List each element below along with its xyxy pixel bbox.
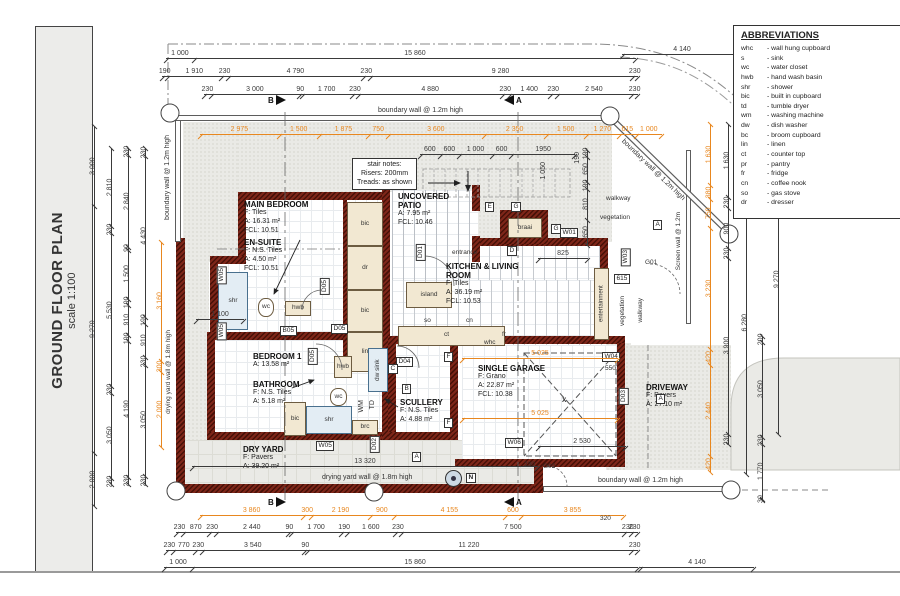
abbreviation-meaning: - sink [767,54,783,64]
dim-segment: 190 [135,317,149,324]
abbreviation-row: pr - pantry [741,160,900,170]
abbreviation-row: dw - dish washer [741,121,900,131]
dim-segment: 5 025 [462,410,618,422]
dim-segment: 3 900 [718,258,732,433]
dim-chain-top-orange: 2 9751 5001 8757503 6002 3501 5001 27061… [200,126,662,138]
abbreviation-meaning: - washing machine [767,111,824,121]
abbreviation-row: dr - dresser [741,198,900,208]
boundary-wall-note-top: boundary wall @ 1.2m high [378,107,463,114]
door-tag-d05: D05 [331,324,348,334]
section-letter: A [516,498,522,507]
page-title: GROUND FLOOR PLAN [49,212,66,389]
dim-1050: 1 050 [540,162,547,180]
coffee-nook-label: cn [466,318,473,325]
dresser: dr [347,246,383,290]
room-label-bedroom1: BEDROOM 1 A: 13.58 m² [253,352,301,370]
room-label-patio: UNCOVERED PATIO A: 7.95 m² FCL: 10.46 [398,192,470,228]
window-tag-w05: W05 [316,441,334,451]
dim-segment: 600 [420,146,440,158]
dim-segment: 4 430 [135,156,149,317]
abbreviation-key: lin [741,140,767,150]
abbreviation-row: bc - broom cupboard [741,131,900,141]
room-label-bathroom: BATHROOM F: N.S. Tiles A: 5.18 m² [253,380,300,407]
dim-segment: 230 [135,476,149,484]
north-letter: N [466,473,476,483]
washing-machine-label: WM [358,400,365,412]
dim-segment: 1 000 [164,559,192,571]
dim-5025-garage-top: 5 025 [462,350,618,362]
dim-chain-right-orange: 1 6303807503 2304202 440420 [700,124,714,472]
dim-chain-top-3: 2303 000901 7002304 8802301 4002302 5402… [204,86,638,98]
dim-segment: 1 700 [302,86,352,98]
dim-segment: 230 [118,477,132,484]
abbreviation-key: bic [741,92,767,102]
dim-segment: 1 500 [546,126,586,138]
dim-segment: 870 [183,524,209,536]
gate-tag-g02: G02 [543,464,555,471]
abbreviation-key: ct [741,150,767,160]
dim-segment: 1 000 [636,126,663,138]
wall-type-tag-c: C [388,364,398,374]
door-tag-d05: D05 [308,348,318,365]
dim-segment: 600 [505,507,521,519]
dim-segment: 1 630 [700,124,714,185]
abbreviation-meaning: - water closet [767,63,807,73]
abbreviation-key: td [741,102,767,112]
dim-segment: 3 000 [84,126,98,206]
abbreviation-row: fr - fridge [741,169,900,179]
dim-segment: 750 [700,199,714,227]
patio-post [472,185,480,211]
walkway-area-left [183,122,238,262]
abbreviation-meaning: - coffee nook [767,179,806,189]
dim-segment: 5 025 [462,350,618,362]
dim-segment: 2 440 [700,365,714,457]
drawing-title: GROUND FLOOR PLAN scale 1:100 [40,150,86,450]
dim-segment: 11 220 [307,542,632,554]
dim-segment: 230 [718,248,732,258]
drying-yard-wall-note: drying yard wall @ 1.8m high [322,474,412,481]
wall-type-tag-a: A [656,394,665,404]
toilet: wc [330,388,347,406]
section-marker-a-bottom: A [504,497,522,507]
abbreviation-meaning: - gas stove [767,189,800,199]
abbreviation-row: cn - coffee nook [741,179,900,189]
boundary-wall-top [174,115,614,121]
dim-segment: 230 [101,478,115,484]
abbreviation-row: lin - linen [741,140,900,150]
abbreviation-meaning: - hand wash basin [767,73,822,83]
door-tag-d04: D04 [396,357,413,367]
dim-segment: 15 860 [194,50,636,62]
boundary-wall-note-left: boundary wall @ 1.2m high [164,135,171,220]
dw-sink-counter: dw sink [368,348,388,392]
abbreviations-panel: ABBREVIATIONS whc - wall hung cupboard s… [733,25,900,219]
dim-190: 190 [574,152,581,164]
boundary-wall-note-diagonal: boundary wall @ 1.2m high [620,138,686,202]
abbreviation-meaning: - linen [767,140,786,150]
drying-yard-wall-west [176,238,185,492]
dim-segment: 1 700 [291,524,342,536]
vegetation-label: vegetation [600,215,630,222]
dim-segment: 3 230 [700,228,714,349]
dim-segment: 1 910 [167,68,221,80]
window-tag-w03: W03 [621,248,631,266]
dim-chain-right-3: 2003 0502301 77030 [752,336,766,500]
scale-label: scale 1:100 [66,212,78,389]
screen-wall-note: Screen wall @ 1.2m [676,212,683,270]
dim-segment: 1 770 [752,444,766,499]
abbreviation-row: s - sink [741,54,900,64]
door-tag-d02: D02 [370,436,380,453]
dim-segment: 810 [577,189,591,220]
hand-wash-basin: hwb [285,301,311,316]
dim-segment: 900 [718,208,732,248]
dim-chain-left-3: 2302 840901 5001909101904 190230 [118,148,132,484]
whc-label: whc [484,340,496,347]
drying-yard-wall-south [176,484,542,493]
entertainment-counter: entertainment [594,268,609,340]
gate-tag-g01: G01 [645,260,657,267]
dim-825: 825 [538,250,588,262]
dim-segment: 230 [631,524,638,536]
dim-segment: 825 [538,250,588,262]
dim-segment: 1 875 [319,126,369,138]
dim-segment: 4 140 [640,559,754,571]
vegetation-label: vegetation [620,296,627,326]
dim-segment: 230 [631,542,638,554]
toilet: wc [258,298,274,317]
dim-1100-ensuite: 1 100 [196,311,244,323]
dim-segment: 1 000 [459,146,492,158]
boundary-wall-bottom [543,486,733,492]
walkway-label: walkway [606,196,631,203]
room-label-kitchen: KITCHEN & LIVING ROOM F: Tiles A: 36.19 … [446,262,530,307]
dim-320: 320 [600,516,611,523]
dim-segment: 3 540 [202,542,304,554]
dim-segment: 900 [370,507,394,519]
dim-chain-patio-right: 190650190810650 [577,150,591,245]
garage-x-label: X [562,398,566,405]
abbreviation-key: shr [741,83,767,93]
abbreviations-list: whc - wall hung cupboard s - sink wc - w… [741,44,900,208]
abbreviation-meaning: - counter top [767,150,805,160]
dim-segment: 230 [632,68,639,80]
dim-chain-left-4: 2304 4301909102303 050230 [135,148,149,484]
door-tag-d03: D03 [619,388,629,405]
dim-segment: 4 155 [394,507,505,519]
dim-segment: 3 050 [101,393,115,478]
window-tag-w05: W05 [217,266,227,284]
dim-segment: 1 600 [347,524,395,536]
dim-segment: 2 840 [118,155,132,247]
bic-cupboard: bic [284,402,306,436]
wall [207,332,215,440]
abbreviation-key: whc [741,44,767,54]
section-arrow-icon [504,497,514,507]
dim-chain-bottom-1: 2308702302 440901 7001901 6002307 500230… [176,524,638,536]
abbreviation-meaning: - shower [767,83,793,93]
dim-2530: 2 530 [538,438,626,450]
dim-segment: 3 050 [135,365,149,476]
dim-segment: 3 000 [211,86,299,98]
dim-segment: 2 810 [101,148,115,226]
dim-segment: 615 [619,126,635,138]
room-label-main-bedroom: MAIN BEDROOM F: Tiles A: 16.31 m² FCL: 1… [244,200,308,235]
dim-segment: 2 530 [538,438,626,450]
dim-segment: 2 440 [216,524,289,536]
dim-segment: 1 100 [196,311,244,323]
dim-chain-bottom-orange: 3 8603002 1909004 1556003 855 [200,507,624,519]
hand-wash-basin: hwb [334,356,352,378]
abbreviation-meaning: - tumble dryer [767,102,809,112]
abbreviation-key: dw [741,121,767,131]
dim-segment: 13 320 [192,458,538,470]
dim-segment: 15 860 [192,559,638,571]
dim-segment: 1950 [511,146,575,158]
door-tag-d05: D05 [320,278,330,295]
dim-230: 230 [524,462,535,469]
wall-type-tag-a: A [653,220,662,230]
abbreviation-row: bic - built in cupboard [741,92,900,102]
dim-4140-bottom: 4 140 [640,559,754,571]
bic-cupboard: bic [347,202,383,246]
abbreviation-key: wm [741,111,767,121]
section-marker-b-bottom: B [268,497,286,507]
dim-segment: 2 000 [151,372,165,447]
abbreviation-key: hwb [741,73,767,83]
abbreviation-row: so - gas stove [741,189,900,199]
dim-segment: 2 975 [200,126,279,138]
wall-type-tag-b: B [402,384,411,394]
dim-segment: 3 860 [200,507,303,519]
abbreviation-key: pr [741,160,767,170]
dim-chain-stairs: 6006001 0006001950 [420,146,575,158]
abbreviation-meaning: - pantry [767,160,790,170]
dim-615: 615 [614,274,630,284]
room-label-driveway: DRIVEWAY F: Pavers A: 27.10 m² [646,383,688,410]
dim-segment: 600 [492,146,512,158]
dim-segment: 2 350 [484,126,546,138]
dim-chain-top-1: 1 00015 860 [166,50,636,62]
section-arrow-icon [276,497,286,507]
dim-segment: 3 160 [151,242,165,361]
abbreviation-meaning: - broom cupboard [767,131,821,141]
dim-segment: 230 [631,86,638,98]
wall-type-tag-g: G [551,224,561,234]
abbreviation-key: s [741,54,767,64]
abbreviation-key: dr [741,198,767,208]
dim-segment: 420 [700,456,714,472]
dim-segment: 230 [135,357,149,365]
abbreviation-key: cn [741,179,767,189]
walkway-label: walkway [638,298,645,323]
room-label-garage: SINGLE GARAGE F: Grano A: 22.87 m² FCL: … [478,364,545,399]
abbreviation-meaning: - dresser [767,198,794,208]
dim-segment: 4 190 [118,341,132,477]
dim-segment: 30 [752,499,766,500]
shower: shr [306,406,352,434]
wall [238,192,388,200]
section-letter: B [268,498,274,507]
dim-chain-left-2: 2 8102305 5302303 050230 [101,148,115,484]
dim-chain-right-1: 1 6302309002303 900230 [718,124,732,444]
sheet-border-bottom [0,571,900,573]
gas-stove-label: so [424,318,431,325]
abbreviation-meaning: - dish washer [767,121,807,131]
dim-segment: 9 270 [84,206,98,453]
dim-chain-bottom-2: 2307702303 5409011 220230 [166,542,638,554]
abbreviation-key: fr [741,169,767,179]
dim-segment: 9 280 [370,68,632,80]
wall-type-tag-d: D [507,246,517,256]
dim-4140-top: 4 140 [622,46,742,58]
dim-segment: 1 000 [166,50,194,62]
dim-segment: 750 [368,126,388,138]
window-tag-w06: W06 [505,438,523,448]
wall-type-tag-g: G [511,202,521,212]
abbreviation-meaning: - wall hung cupboard [767,44,830,54]
dim-chain-left-1: 3 0009 2702 000 [84,126,98,506]
dim-segment: 1 500 [279,126,319,138]
room-label-scullery: SCULLERY F: N.S. Tiles A: 4.88 m² [400,398,443,425]
abbreviation-row: whc - wall hung cupboard [741,44,900,54]
wall [388,336,396,440]
dim-chain-bottom-3: 1 00015 860 [164,559,638,571]
dim-segment: 4 880 [358,86,501,98]
dim-segment: 910 [135,324,149,357]
wall-type-tag-f: F [444,418,453,428]
abbreviation-key: so [741,189,767,199]
wall-type-tag-e: E [485,202,494,212]
boundary-wall-left [175,120,181,242]
abbreviation-meaning: - built in cupboard [767,92,821,102]
window-tag-w05: W05 [217,322,227,340]
dim-segment: 1 630 [718,124,732,197]
dim-5025-garage-bottom: 5 025 [462,410,618,422]
abbreviation-row: shr - shower [741,83,900,93]
bic-cupboard: bic [347,290,383,332]
dim-chain-left-orange: 3 1603002 000 [151,242,165,447]
dim-segment: 600 [440,146,460,158]
dim-segment: 2 540 [557,86,632,98]
wall [388,432,458,440]
abbreviations-title: ABBREVIATIONS [741,30,900,41]
dim-segment: 1 500 [118,250,132,299]
counter-top-label: ct [444,332,449,339]
fridge-label: fr [502,332,506,339]
abbreviation-row: wm - washing machine [741,111,900,121]
dim-segment: 2 000 [84,453,98,506]
screen-wall [686,150,691,324]
dim-13320-dry-yard: 13 320 [192,458,538,470]
dim-chain-top-2: 1901 9102304 7902309 280230 [162,68,638,80]
room-label-en-suite: EN-SUITE F: N.S. Tiles A: 4.50 m² FCL: 1… [244,238,282,273]
dim-segment: 650 [577,220,591,245]
dim-segment: 910 [118,305,132,334]
floor-plan-sheet: GROUND FLOOR PLAN scale 1:100 [0,0,900,596]
dim-segment: 230 [718,434,732,444]
abbreviation-key: bc [741,131,767,141]
dim-550: 550 [605,366,616,373]
dim-segment: 2 190 [311,507,370,519]
dim-segment: 1 400 [509,86,550,98]
dim-segment: 4 790 [228,68,363,80]
broom-cupboard: brc [352,420,378,435]
dim-segment: 7 500 [401,524,624,536]
stair-notes-box: stair notes: Risers: 200mm Treads: as sh… [352,158,417,190]
dim-segment: 3 600 [388,126,483,138]
dim-segment: 4 140 [622,46,742,58]
boundary-wall-note-bottom: boundary wall @ 1.2m high [598,477,683,484]
door-tag-d01: D01 [416,244,426,261]
abbreviation-key: wc [741,63,767,73]
window-tag-w01: W01 [560,228,578,238]
wall-type-tag-f: F [444,352,453,362]
dim-segment: 1 270 [586,126,620,138]
abbreviation-row: hwb - hand wash basin [741,73,900,83]
braai: braai [508,218,542,238]
tumble-dryer-label: TD [369,400,376,409]
abbreviation-row: wc - water closet [741,63,900,73]
entrance-label: entrance [452,250,477,257]
drying-yard-wall-note-left: drying yard wall @ 1.8m high [166,330,173,414]
north-symbol-icon [445,470,462,487]
door-tag-b05: B05 [280,326,297,336]
dim-segment: 3 050 [752,342,766,437]
abbreviation-row: ct - counter top [741,150,900,160]
abbreviation-meaning: - fridge [767,169,788,179]
dim-segment: 5 530 [101,233,115,387]
abbreviation-row: td - tumble dryer [741,102,900,112]
